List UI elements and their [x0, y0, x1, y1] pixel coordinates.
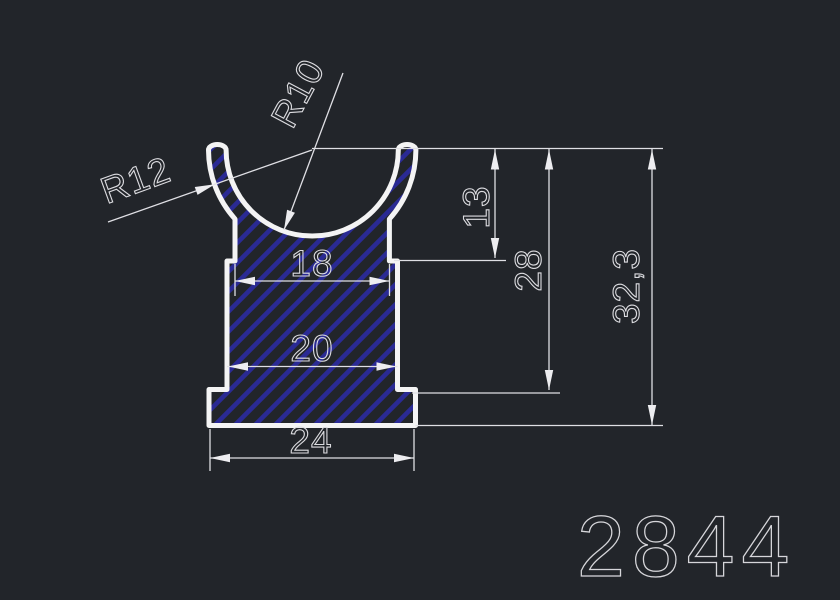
- dimension-width-top-label: 18: [290, 243, 333, 284]
- dimension-width-body-label: 20: [290, 328, 333, 369]
- cad-viewport[interactable]: 18 20 24 13 28 32,3: [0, 0, 840, 600]
- dimension-height-body-label: 28: [508, 248, 549, 291]
- dimension-width-base-label: 24: [289, 420, 332, 461]
- dimension-height-total-label: 32,3: [606, 248, 647, 324]
- part-number: 2844: [577, 499, 796, 595]
- dimension-height-lip-label: 13: [456, 185, 497, 228]
- cad-drawing: 18 20 24 13 28 32,3: [0, 0, 840, 600]
